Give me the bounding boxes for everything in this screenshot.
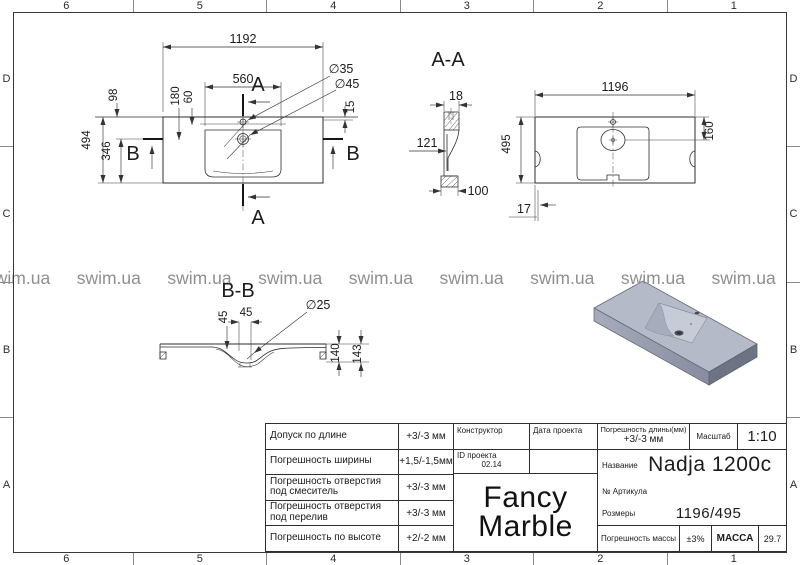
brand-logo: Fancy Marble <box>454 474 597 551</box>
cut-label-a-top: A <box>251 74 265 96</box>
zone-column-label: 6 <box>0 553 134 565</box>
length-tolerance-value: +3/-3 мм <box>598 434 689 445</box>
zone-column-label: 2 <box>534 553 668 565</box>
tolerance-table: Допуск по длине +3/-3 мм Погрешность шир… <box>266 424 453 551</box>
zone-column-label: 1 <box>668 0 800 12</box>
tolerance-value: +3/-3 мм <box>399 475 453 500</box>
brand-logo-line2: Marble <box>478 513 573 542</box>
length-tolerance-cell: Погрешность длины(мм) +3/-3 мм <box>598 424 690 449</box>
designer-label: Конструктор <box>454 424 530 449</box>
dim-100: 100 <box>468 184 489 198</box>
tolerance-value: +3/-3 мм <box>399 501 453 526</box>
sink-overflow-dot <box>690 323 692 325</box>
plan-view: ∅35 ∅45 1192 560 A A B B 98 180 <box>81 32 360 229</box>
watermark-text: swim.ua <box>530 268 594 290</box>
zone-row-label: A <box>787 418 800 552</box>
tolerance-value: +1,5/-1,5мм <box>399 450 453 475</box>
tolerance-label: Погрешность отверстия под смеситель <box>266 475 399 500</box>
zone-column-label: 6 <box>0 0 134 12</box>
watermark-text: swim.ua <box>77 268 141 290</box>
dim-45-horizontal: 45 <box>240 307 253 319</box>
dim-15: 15 <box>345 101 357 114</box>
mass-tolerance-label: Погрешность массы <box>598 526 680 551</box>
dim-495: 495 <box>501 134 513 153</box>
zone-row-label: D <box>0 12 13 147</box>
bottom-view: 1196 495 160 17 <box>501 80 716 221</box>
mass-tolerance-value: ±3% <box>680 526 712 551</box>
project-id-value: 02.14 <box>457 460 526 469</box>
sink-drain-hole-inner <box>677 332 681 334</box>
tolerance-row: Погрешность по высоте +2/-2 мм <box>266 526 453 551</box>
dia35-label: ∅35 <box>329 62 354 76</box>
name-label: Название <box>602 461 638 470</box>
zone-band-left: D C B A <box>0 12 13 552</box>
title-block: Допуск по длине +3/-3 мм Погрешность шир… <box>265 423 787 552</box>
zone-column-label: 3 <box>401 0 535 12</box>
title-block-right: Погрешность длины(мм) +3/-3 мм Масштаб 1… <box>597 424 786 551</box>
dim-45-vertical: 45 <box>218 311 230 324</box>
zone-band-bottom: 6 5 4 3 2 1 <box>0 553 800 565</box>
section-aa-label: A-A <box>431 49 465 71</box>
dim-98: 98 <box>108 89 120 102</box>
watermark-text: swim.ua <box>439 268 503 290</box>
scale-value: 1:10 <box>738 424 786 449</box>
dim-1192: 1192 <box>230 32 257 46</box>
dia25-label: ∅25 <box>306 298 331 312</box>
dim-143: 143 <box>352 344 364 363</box>
tolerance-value: +2/-2 мм <box>399 526 453 551</box>
dim-60: 60 <box>183 91 195 104</box>
tolerance-row: Погрешность отверстия под перелив +3/-3 … <box>266 501 453 527</box>
watermark-text: swim.ua <box>258 268 322 290</box>
zone-column-label: 2 <box>534 0 668 12</box>
scale-label: Масштаб <box>690 424 738 449</box>
zone-column-label: 3 <box>401 553 535 565</box>
zone-band-top: 6 5 4 3 2 1 <box>0 0 800 12</box>
mass-label: МАССА <box>712 526 759 551</box>
cut-label-b-right: B <box>346 143 359 165</box>
cut-label-b-left: B <box>126 143 139 165</box>
mass-value: 29.7 <box>759 526 786 551</box>
zone-row-label: B <box>787 283 800 418</box>
section-aa-view: A-A 18 121 100 <box>409 49 488 198</box>
drawing-sheet: swim.ua swim.ua swim.ua swim.ua swim.ua … <box>0 0 800 565</box>
dim-346: 346 <box>101 141 113 160</box>
tolerance-row: Погрешность отверстия под смеситель +3/-… <box>266 475 453 501</box>
watermark-band: swim.ua swim.ua swim.ua swim.ua swim.ua … <box>0 268 800 290</box>
size-label: Розмеры <box>602 509 635 518</box>
zone-row-label: A <box>0 418 13 552</box>
zone-row-label: C <box>787 147 800 282</box>
zone-column-label: 1 <box>668 553 800 565</box>
zone-column-label: 5 <box>134 553 268 565</box>
zone-row-label: D <box>787 12 800 147</box>
tolerance-row: Допуск по длине +3/-3 мм <box>266 424 453 450</box>
length-tolerance-label: Погрешность длины(мм) <box>598 425 689 434</box>
dim-17: 17 <box>517 202 531 216</box>
zone-row-label: B <box>0 283 13 418</box>
tolerance-label: Погрешность по высоте <box>266 526 399 551</box>
watermark-text: swim.ua <box>621 268 685 290</box>
watermark-text: swim.ua <box>712 268 776 290</box>
dim-18: 18 <box>449 89 463 103</box>
tolerance-label: Погрешность отверстия под перелив <box>266 501 399 526</box>
tolerance-label: Допуск по длине <box>266 424 399 449</box>
dia45-label: ∅45 <box>335 77 360 91</box>
cut-label-a-bottom: A <box>251 207 265 229</box>
zone-column-label: 4 <box>267 553 401 565</box>
tolerance-row: Погрешность ширины +1,5/-1,5мм <box>266 450 453 476</box>
dim-160: 160 <box>704 121 716 140</box>
zone-column-label: 5 <box>134 0 268 12</box>
project-id-label: ID проекта <box>457 451 526 460</box>
product-info-cell: Название Nadja 1200c № Артикула Розмеры … <box>598 450 786 526</box>
zone-band-right: D C B A <box>787 12 800 552</box>
sink-faucet-hole <box>695 312 700 315</box>
dim-494: 494 <box>81 130 93 150</box>
project-date-label: Дата проекта <box>530 424 597 449</box>
watermark-text: swim.ua <box>349 268 413 290</box>
dim-180: 180 <box>170 86 182 105</box>
zone-column-label: 4 <box>267 0 401 12</box>
sink-3d-render <box>580 272 770 397</box>
section-bb-view: B-B 45 45 ∅25 1 <box>160 280 369 377</box>
product-name: Nadja 1200c <box>638 453 782 477</box>
brand-logo-line1: Fancy <box>483 484 567 513</box>
dim-1196: 1196 <box>602 80 629 94</box>
zone-row-label: C <box>0 147 13 282</box>
dim-560: 560 <box>233 72 254 86</box>
size-value: 1196/495 <box>635 505 782 522</box>
dim-140: 140 <box>330 343 342 362</box>
project-date-value <box>530 450 597 473</box>
tolerance-label: Погрешность ширины <box>266 450 399 475</box>
dim-121: 121 <box>417 136 438 150</box>
project-id-cell: ID проекта 02.14 <box>454 450 530 473</box>
title-block-middle: Конструктор Дата проекта ID проекта 02.1… <box>453 424 597 551</box>
tolerance-value: +3/-3 мм <box>399 424 453 449</box>
article-label: № Артикула <box>602 487 647 496</box>
watermark-text: swim.ua <box>167 268 231 290</box>
